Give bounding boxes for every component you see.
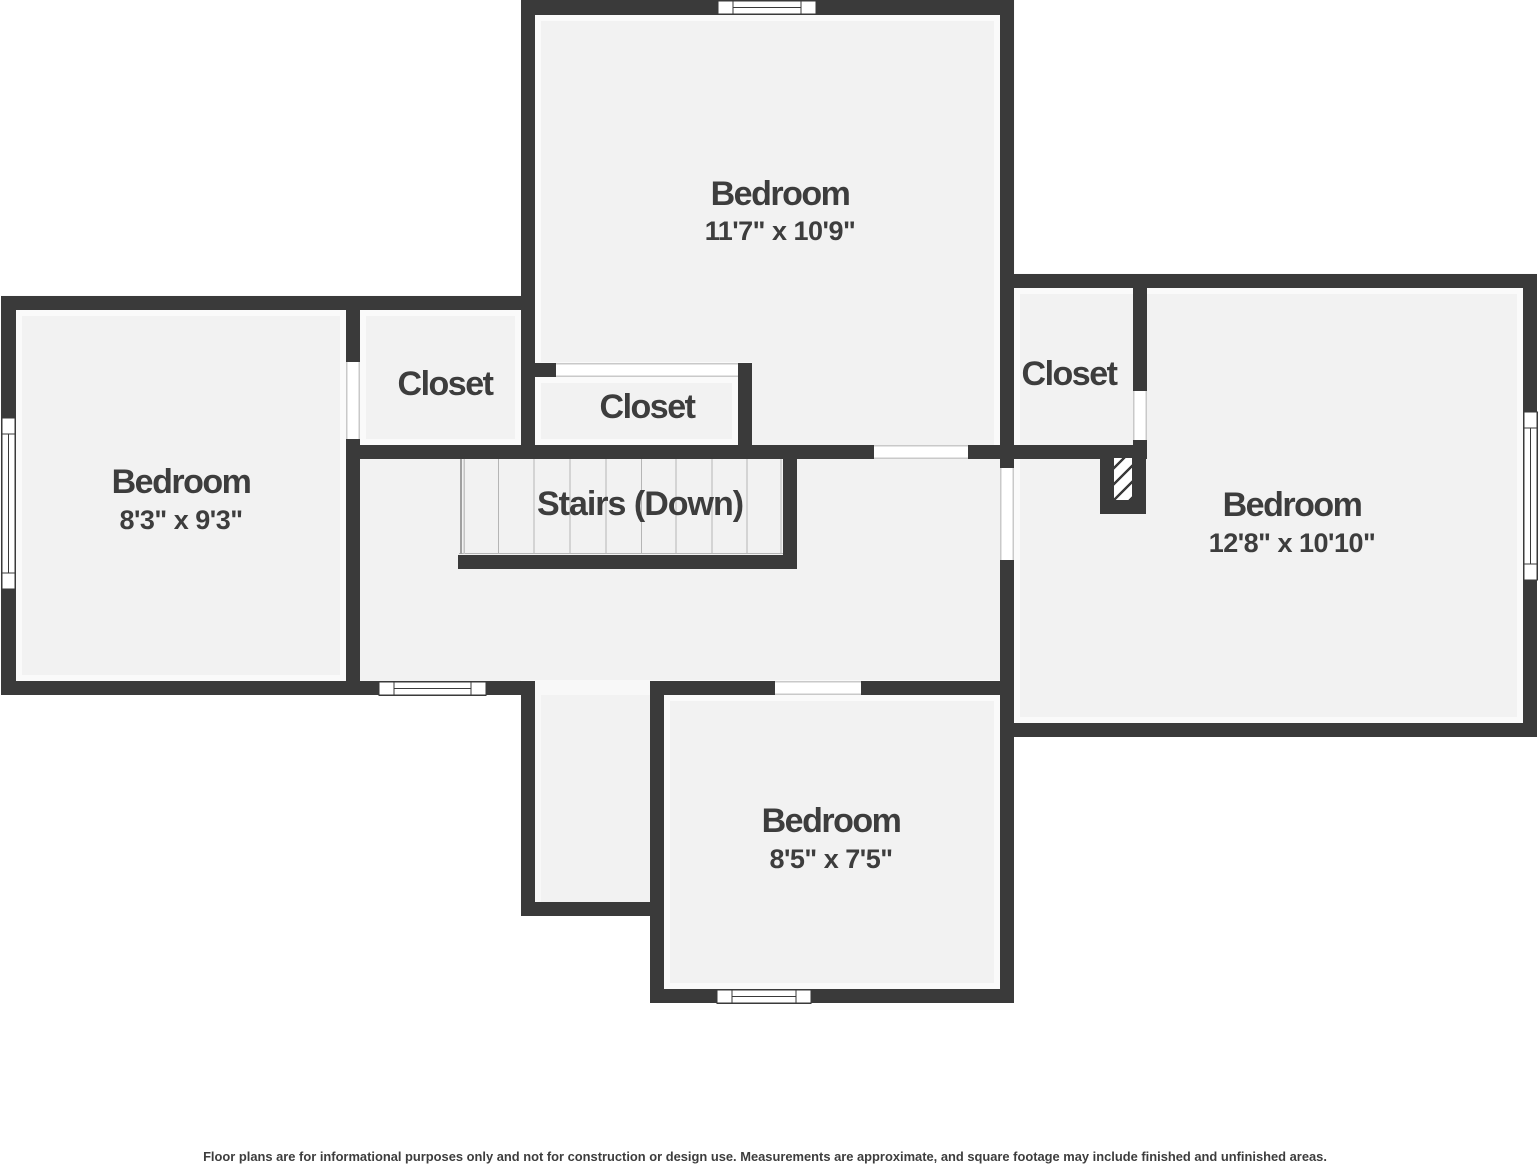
svg-text:12'8" x 10'10": 12'8" x 10'10"	[1209, 528, 1376, 558]
svg-text:Bedroom: Bedroom	[112, 463, 251, 501]
svg-text:8'5" x 7'5": 8'5" x 7'5"	[769, 844, 892, 874]
svg-text:Closet: Closet	[398, 365, 494, 403]
svg-text:Bedroom: Bedroom	[1223, 486, 1362, 524]
svg-text:Bedroom: Bedroom	[762, 802, 901, 840]
svg-text:Closet: Closet	[1022, 355, 1118, 393]
svg-text:Floor plans are for informatio: Floor plans are for informational purpos…	[203, 1149, 1327, 1164]
svg-text:Closet: Closet	[600, 388, 696, 426]
svg-text:Stairs (Down): Stairs (Down)	[537, 485, 743, 523]
svg-text:11'7" x 10'9": 11'7" x 10'9"	[705, 216, 856, 246]
svg-text:Bedroom: Bedroom	[711, 175, 850, 213]
svg-text:8'3" x 9'3": 8'3" x 9'3"	[119, 505, 242, 535]
